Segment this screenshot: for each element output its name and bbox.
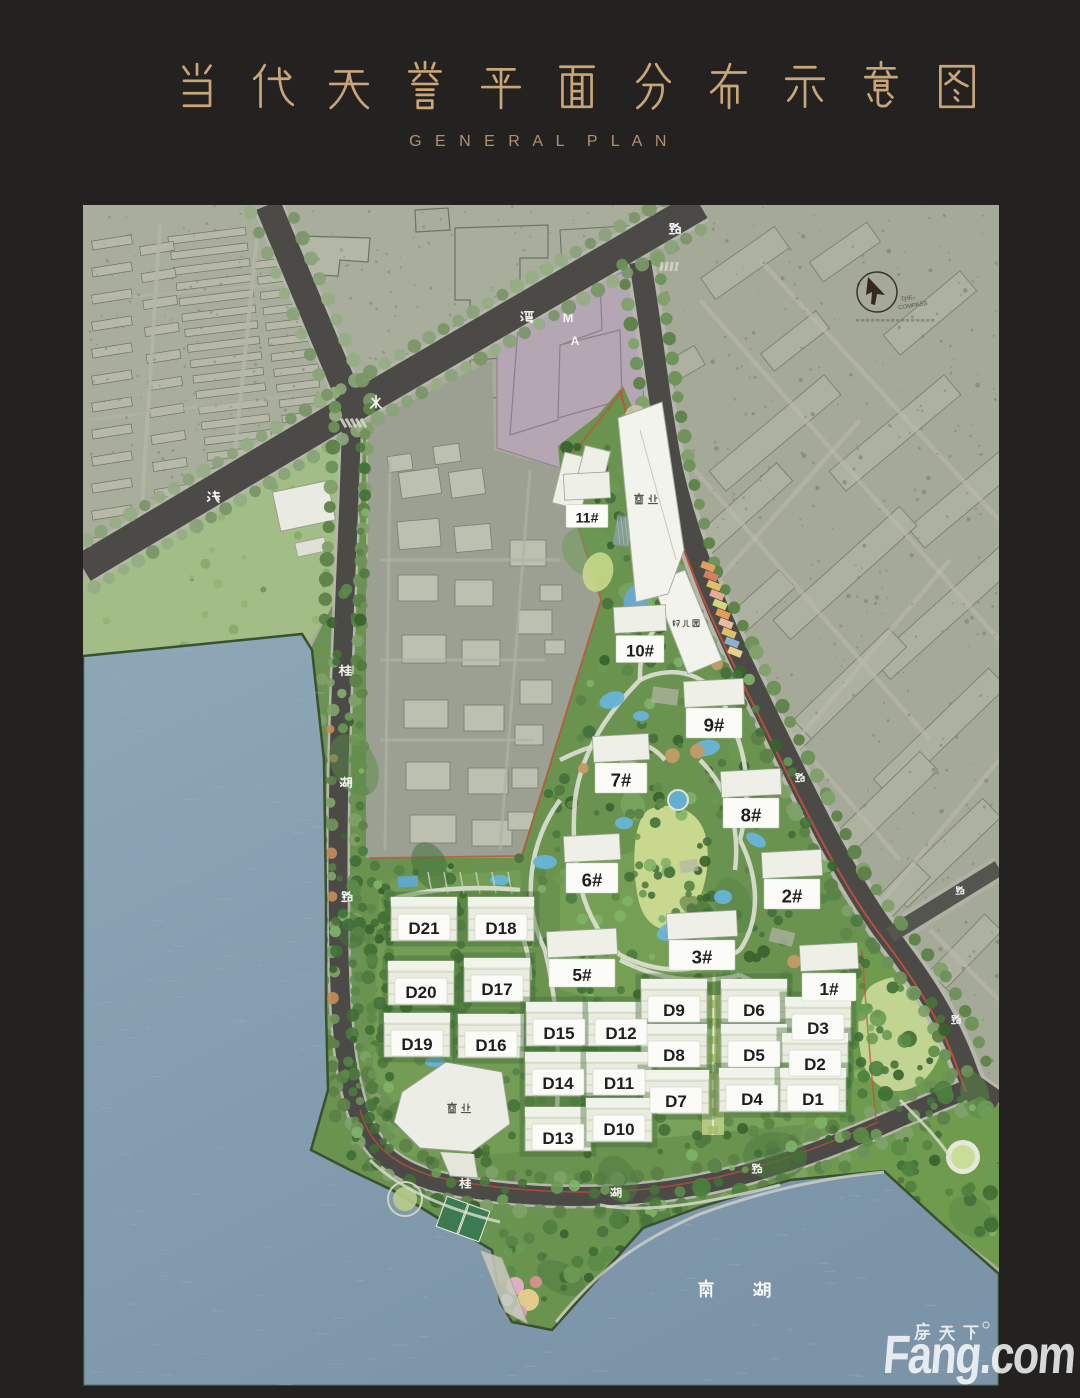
svg-text:D20: D20 bbox=[405, 983, 436, 1002]
svg-text:D16: D16 bbox=[475, 1036, 506, 1055]
svg-text:D7: D7 bbox=[665, 1092, 687, 1111]
svg-text:D13: D13 bbox=[542, 1129, 573, 1148]
svg-text:D15: D15 bbox=[543, 1024, 574, 1043]
svg-text:D6: D6 bbox=[743, 1001, 765, 1020]
svg-text:7#: 7# bbox=[611, 769, 632, 790]
svg-text:D11: D11 bbox=[604, 1074, 634, 1093]
svg-text:5#: 5# bbox=[572, 965, 592, 985]
svg-text:D9: D9 bbox=[663, 1001, 685, 1020]
svg-text:D3: D3 bbox=[807, 1019, 829, 1038]
svg-text:Fang.com: Fang.com bbox=[881, 1326, 1077, 1386]
svg-text:11#: 11# bbox=[576, 510, 599, 526]
svg-text:8#: 8# bbox=[741, 804, 762, 825]
svg-text:6#: 6# bbox=[582, 869, 603, 890]
svg-text:D21: D21 bbox=[408, 919, 439, 938]
svg-text:A: A bbox=[571, 334, 580, 348]
svg-text:9#: 9# bbox=[704, 714, 725, 735]
svg-text:3#: 3# bbox=[692, 946, 713, 967]
svg-text:D17: D17 bbox=[481, 980, 512, 999]
svg-text:D5: D5 bbox=[743, 1046, 765, 1065]
svg-text:D19: D19 bbox=[401, 1035, 432, 1054]
svg-text:D1: D1 bbox=[802, 1090, 824, 1109]
svg-text:D14: D14 bbox=[542, 1074, 574, 1093]
svg-text:10#: 10# bbox=[626, 642, 655, 661]
svg-text:D12: D12 bbox=[605, 1024, 636, 1043]
svg-text:D4: D4 bbox=[741, 1090, 763, 1109]
svg-text:2#: 2# bbox=[782, 885, 803, 906]
svg-text:G E N E R A L P L A N: G E N E R A L P L A N bbox=[409, 133, 671, 150]
svg-text:D18: D18 bbox=[485, 919, 516, 938]
svg-text:1#: 1# bbox=[819, 979, 839, 999]
svg-text:D2: D2 bbox=[804, 1055, 826, 1074]
svg-text:D10: D10 bbox=[603, 1120, 634, 1139]
svg-text:D8: D8 bbox=[663, 1046, 685, 1065]
